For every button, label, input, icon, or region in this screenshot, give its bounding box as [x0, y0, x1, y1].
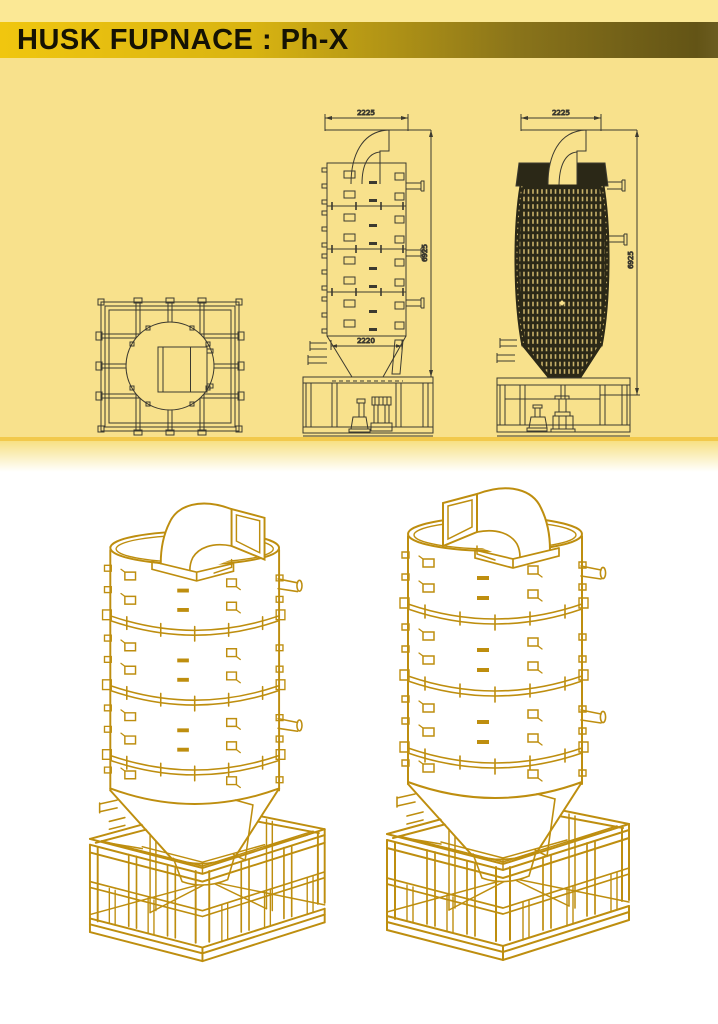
dimension-label: 2225: [552, 109, 570, 117]
isometric-view-left: [90, 504, 325, 962]
dimension-label: 6925: [421, 244, 429, 262]
isometric-drawing-area: [0, 472, 718, 1024]
title-bar: HUSK FUPNACE : Ph-X: [0, 22, 718, 58]
support-base: [303, 377, 433, 436]
outlet-elbow-duct: [351, 130, 389, 184]
dimension-top-width: 2225: [521, 109, 601, 131]
furnace-shell-circle: [126, 322, 214, 410]
dimension-hopper-width: 2220: [331, 337, 402, 350]
dimension-label: 6925: [627, 251, 635, 269]
support-base: [497, 378, 630, 436]
hopper-cone: [524, 346, 600, 377]
side-elevation-drawing: 2225 6925: [497, 109, 640, 436]
page: HUSK FUPNACE : Ph-X: [0, 0, 718, 1024]
dimension-top-width: 2225: [325, 109, 408, 131]
insulated-body: [497, 180, 627, 363]
yellow-white-fade: [0, 441, 718, 472]
cad-drawings-svg: 2225 6925: [0, 58, 718, 437]
hopper-cone: 2220: [308, 336, 406, 377]
dimension-total-height: 6925: [325, 130, 433, 377]
top-strip: [0, 0, 718, 22]
page-title: HUSK FUPNACE : Ph-X: [17, 24, 349, 57]
dimension-label: 2225: [357, 109, 375, 117]
isometric-drawings-svg: [0, 472, 718, 1024]
furnace-body: [322, 163, 424, 336]
cad-drawing-area: 2225 6925: [0, 58, 718, 437]
plan-view-drawing: [96, 298, 244, 435]
front-elevation-drawing: 2225 6925: [303, 109, 433, 436]
dimension-label: 2220: [357, 337, 375, 345]
isometric-view-right: [387, 488, 629, 960]
